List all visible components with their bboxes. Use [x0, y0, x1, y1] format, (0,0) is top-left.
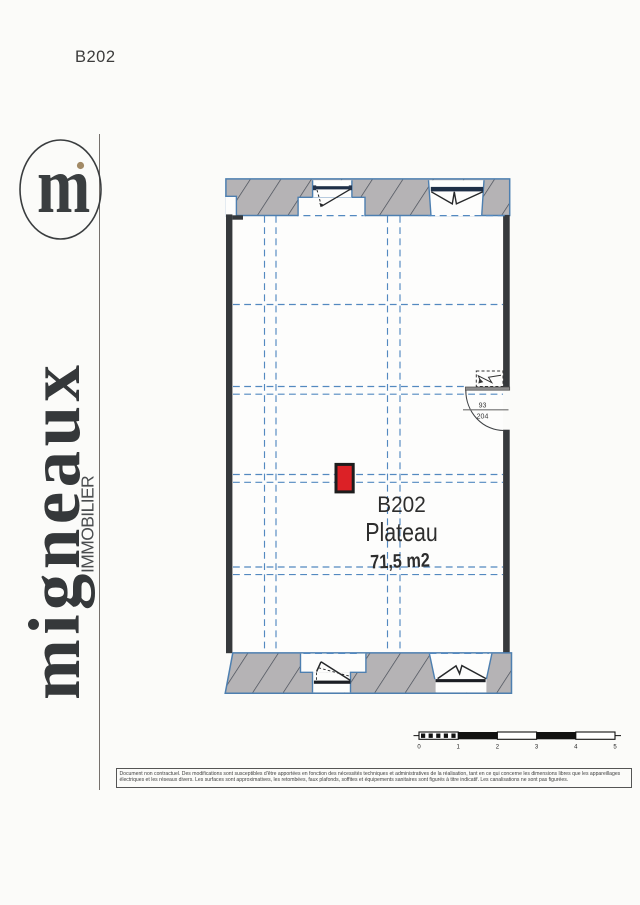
svg-text:5: 5 — [613, 745, 617, 751]
svg-text:3: 3 — [535, 745, 539, 751]
svg-text:1: 1 — [457, 745, 461, 751]
svg-text:2: 2 — [496, 745, 500, 751]
svg-text:204: 204 — [477, 414, 489, 421]
svg-text:B202: B202 — [377, 492, 426, 517]
svg-text:93: 93 — [479, 402, 487, 409]
svg-text:Plateau: Plateau — [365, 517, 438, 547]
svg-text:4: 4 — [574, 745, 578, 751]
svg-text:71,5 m2: 71,5 m2 — [370, 549, 430, 573]
svg-text:0: 0 — [417, 745, 421, 751]
